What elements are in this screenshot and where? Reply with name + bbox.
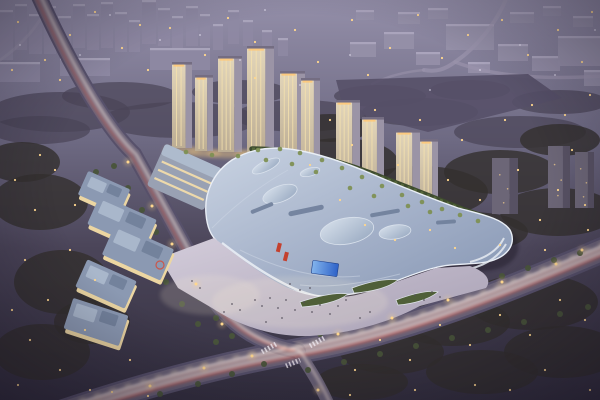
- vignette-overlay: [0, 0, 600, 400]
- architectural-rendering: [0, 0, 600, 400]
- rendering-canvas: [0, 0, 600, 400]
